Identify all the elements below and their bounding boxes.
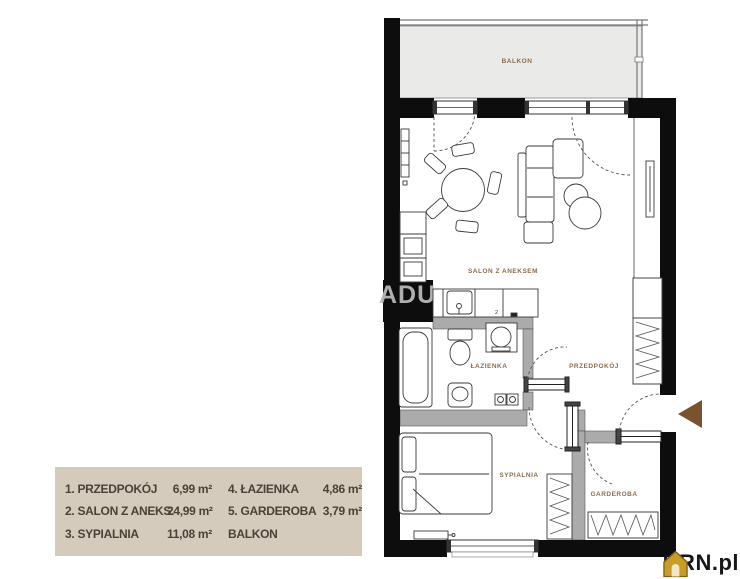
- hallway-wardrobe: [633, 278, 662, 384]
- legend-label: 3. SYPIALNIA: [65, 523, 167, 545]
- coffee-table: [564, 184, 601, 229]
- bathroom-door-leaf: [524, 377, 569, 392]
- radiator: [401, 129, 409, 185]
- double-bed: [399, 433, 492, 514]
- bathroom-cabinet: [495, 394, 518, 405]
- legend-spacer: [212, 500, 228, 522]
- legend-area: 4,86 m²: [318, 478, 362, 500]
- room-label-balkon: BALKON: [502, 58, 533, 65]
- dining-table: [423, 142, 502, 233]
- entrance-door-swing: [619, 394, 661, 436]
- room-label-sypialnia: SYPIALNIA: [499, 472, 538, 479]
- bedroom-door-leaf: [565, 402, 580, 451]
- bedroom-furniture: [399, 433, 572, 539]
- chair: [455, 220, 478, 233]
- radiator: [414, 531, 455, 539]
- legend-label: 4. ŁAZIENKA: [228, 478, 318, 500]
- chair: [487, 171, 502, 195]
- legend-grid: 1. PRZEDPOKÓJ 6,99 m² 4. ŁAZIENKA 4,86 m…: [55, 467, 362, 545]
- balcony-window-frame: [525, 101, 628, 114]
- house-icon: [663, 550, 688, 578]
- kitchen-sink: [447, 291, 472, 314]
- balcony-door-frame: [433, 101, 477, 114]
- legend-area: [318, 523, 362, 545]
- room-label-przedpokoj: PRZEDPOKÓJ: [569, 361, 619, 370]
- legend-spacer: [212, 523, 228, 545]
- bathtub: [399, 328, 432, 407]
- chair: [423, 152, 447, 175]
- washing-machine: [486, 323, 517, 352]
- chair: [451, 142, 475, 157]
- floor-plan-page: ADU: [0, 0, 740, 579]
- legend-area: 24,99 m²: [167, 500, 212, 522]
- toilet: [448, 329, 472, 365]
- room-label-garderoba: GARDEROBA: [590, 491, 637, 498]
- legend: 1. PRZEDPOKÓJ 6,99 m² 4. ŁAZIENKA 4,86 m…: [55, 467, 362, 556]
- legend-area: 11,08 m²: [167, 523, 212, 545]
- counter-mark: 2: [495, 310, 498, 316]
- legend-area: 3,79 m²: [318, 500, 362, 522]
- legend-label: 1. PRZEDPOKÓJ: [65, 478, 167, 500]
- pillow: [402, 477, 416, 511]
- entrance-arrow-icon: [678, 400, 702, 428]
- garderoba-door-swing: [587, 442, 612, 484]
- pillow: [402, 437, 416, 472]
- krn-logo: KRN.pl: [663, 550, 739, 576]
- room-label-lazienka: ŁAZIENKA: [471, 363, 508, 370]
- storage-furniture: [588, 278, 662, 538]
- bedroom-window-frame: [447, 540, 538, 557]
- legend-label: 5. GARDEROBA: [228, 500, 318, 522]
- salon-furniture: [400, 129, 654, 317]
- window-sill: [452, 552, 533, 557]
- bedroom-door-swing: [529, 407, 572, 450]
- washbasin: [448, 383, 472, 407]
- legend-label: 2. SALON Z ANEKS.: [65, 500, 167, 522]
- room-label-salon: SALON Z ANEKSEM: [468, 268, 538, 275]
- legend-label: BALKON: [228, 523, 318, 545]
- garderoba-wardrobe: [588, 512, 658, 538]
- entrance-door-leaf: [616, 429, 661, 444]
- bedroom-wardrobe: [547, 474, 572, 539]
- legend-area: 6,99 m²: [167, 478, 212, 500]
- watermark-text: ADU: [379, 281, 436, 309]
- legend-spacer: [212, 478, 228, 500]
